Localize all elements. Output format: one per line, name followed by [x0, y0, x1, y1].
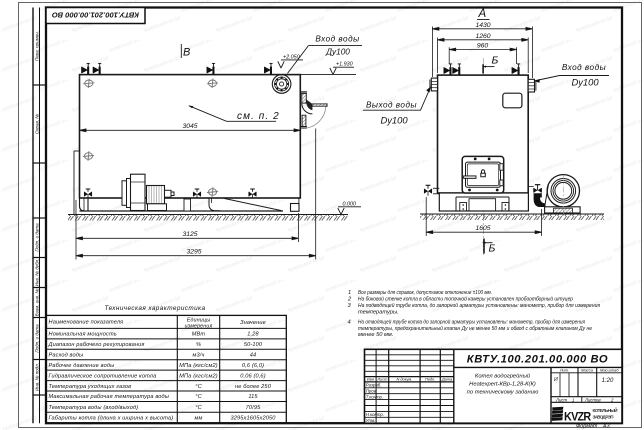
- svg-text:3045: 3045: [182, 123, 197, 130]
- svg-text:Подп. и дата: Подп. и дата: [34, 324, 39, 353]
- svg-text:Инв. № подл.: Инв. № подл.: [34, 363, 39, 391]
- svg-text:Техническая характеристика: Техническая характеристика: [105, 305, 206, 312]
- svg-text:Подп.: Подп.: [425, 377, 435, 382]
- svg-text:Ду100: Ду100: [325, 48, 350, 57]
- svg-text:Б: Б: [489, 243, 496, 255]
- svg-text:3295: 3295: [186, 248, 201, 255]
- svg-text:МПа (кгс/см2): МПа (кгс/см2): [179, 363, 217, 369]
- svg-text:Расход воды: Расход воды: [49, 353, 84, 359]
- svg-text:Справ. №: Справ. №: [34, 114, 39, 135]
- svg-text:Температура воды (вход/выход): Температура воды (вход/выход): [49, 405, 139, 411]
- svg-text:температуры.: температуры.: [358, 309, 399, 315]
- svg-text:не более 250: не более 250: [235, 384, 272, 390]
- svg-text:Номинальная мощность: Номинальная мощность: [49, 332, 117, 338]
- svg-text:960: 960: [477, 43, 489, 50]
- svg-text:А3: А3: [602, 424, 610, 430]
- svg-text:Вход воды: Вход воды: [562, 63, 606, 72]
- svg-text:Формат: Формат: [576, 424, 598, 430]
- svg-text:КВТУ.100.201.00.000 ВО: КВТУ.100.201.00.000 ВО: [52, 10, 139, 19]
- svg-text:°С: °С: [195, 384, 202, 390]
- svg-text:измерения: измерения: [185, 323, 213, 329]
- svg-text:Листов: Листов: [584, 397, 601, 402]
- svg-text:Вход воды: Вход воды: [315, 35, 359, 44]
- svg-text:1:20: 1:20: [602, 378, 614, 384]
- svg-text:КВТУ.100.201.00.000 ВО: КВТУ.100.201.00.000 ВО: [467, 354, 609, 366]
- svg-text:0,6 (6,0): 0,6 (6,0): [242, 363, 264, 369]
- svg-text:+1.930: +1.930: [336, 61, 353, 67]
- svg-text:КОТЕЛЬНЫЙ: КОТЕЛЬНЫЙ: [593, 406, 618, 413]
- svg-text:°С: °С: [195, 405, 202, 411]
- svg-text:Перв. примен.: Перв. примен.: [34, 31, 39, 61]
- svg-text:мм: мм: [195, 416, 203, 422]
- svg-text:На отводящей трубе котла до за: На отводящей трубе котла до запорной арм…: [358, 319, 585, 326]
- svg-text:+2.050: +2.050: [283, 54, 300, 60]
- svg-text:Утв.: Утв.: [366, 418, 376, 423]
- svg-text:Изм: Изм: [367, 377, 375, 382]
- svg-text:Рабочее давление воды: Рабочее давление воды: [49, 363, 115, 369]
- svg-text:Температура уходящих газов: Температура уходящих газов: [49, 384, 132, 390]
- svg-text:На боковой стенке котла в обла: На боковой стенке котла в области топочн…: [358, 295, 573, 302]
- svg-text:Б: Б: [492, 55, 499, 67]
- svg-text:44: 44: [250, 353, 257, 359]
- svg-text:Все размеры для справок, допус: Все размеры для справок, допустимое откл…: [358, 290, 492, 296]
- svg-text:1,28: 1,28: [247, 332, 259, 338]
- svg-text:В: В: [183, 47, 190, 59]
- svg-text:1: 1: [348, 290, 351, 296]
- svg-text:4: 4: [348, 320, 351, 326]
- svg-text:Диапазон рабочего регулировани: Диапазон рабочего регулирования: [48, 342, 145, 348]
- svg-text:Н.контр.: Н.контр.: [366, 412, 384, 417]
- svg-text:А: А: [478, 8, 487, 20]
- svg-text:KVZR: KVZR: [564, 410, 591, 424]
- svg-text:Подп. и дата: Подп. и дата: [34, 223, 39, 252]
- svg-text:50-100: 50-100: [244, 342, 263, 348]
- svg-text:МВт: МВт: [192, 332, 206, 338]
- svg-text:МПа (кгс/см2): МПа (кгс/см2): [179, 373, 217, 379]
- svg-text:Наименование показателя: Наименование показателя: [49, 320, 124, 326]
- svg-text:Максимальная рабочая температу: Максимальная рабочая температура воды: [49, 394, 170, 400]
- svg-text:3125: 3125: [182, 231, 197, 238]
- svg-text:Пров.: Пров.: [366, 389, 377, 394]
- svg-text:3295х1605х2050: 3295х1605х2050: [230, 416, 276, 422]
- svg-text:Инв. № дубл.: Инв. № дубл.: [34, 259, 39, 287]
- svg-text:Dy100: Dy100: [380, 115, 408, 126]
- svg-text:Масштаб: Масштаб: [600, 368, 619, 373]
- svg-text:м3/ч: м3/ч: [193, 353, 205, 359]
- svg-text:Котел водогрейный: Котел водогрейный: [475, 373, 531, 380]
- svg-text:1605: 1605: [475, 225, 490, 232]
- svg-text:70/95: 70/95: [246, 405, 261, 411]
- svg-text:Лист: Лист: [376, 377, 388, 382]
- svg-text:по техническому заданию: по техническому заданию: [467, 390, 539, 396]
- svg-text:менее 50 мм.: менее 50 мм.: [358, 332, 393, 338]
- svg-text:см. п. 2: см. п. 2: [237, 111, 280, 122]
- svg-text:1260: 1260: [475, 33, 490, 40]
- svg-text:Разраб.: Разраб.: [366, 383, 382, 388]
- svg-text:И: И: [554, 377, 558, 383]
- svg-text:115: 115: [248, 394, 258, 400]
- svg-text:Взам. инв. №: Взам. инв. №: [34, 288, 39, 316]
- svg-text:%: %: [196, 342, 201, 348]
- svg-text:1430: 1430: [475, 22, 490, 29]
- svg-text:N докум.: N докум.: [397, 377, 413, 382]
- svg-text:Лит.: Лит.: [559, 368, 569, 373]
- svg-text:ЗАВОД РЭП: ЗАВОД РЭП: [593, 414, 614, 419]
- svg-text:Дата: Дата: [441, 377, 453, 382]
- svg-text:Габариты котла (длина х ширина: Габариты котла (длина х ширина х высота): [49, 416, 174, 422]
- svg-text:Масса: Масса: [581, 368, 594, 373]
- svg-text:температуры, предохранительный: температуры, предохранительный клапан Ду…: [358, 325, 592, 332]
- svg-text:Heatexpert-КВр-1,28-К(К): Heatexpert-КВр-1,28-К(К): [469, 382, 536, 388]
- svg-text:Dy100: Dy100: [571, 76, 599, 87]
- svg-text:0,06 (0,6): 0,06 (0,6): [240, 373, 265, 379]
- svg-text:°С: °С: [195, 394, 202, 400]
- svg-text:Лист: Лист: [555, 397, 567, 402]
- svg-text:Выход воды: Выход воды: [366, 101, 417, 110]
- svg-text:Значение: Значение: [240, 320, 266, 326]
- svg-text:Т.контр.: Т.контр.: [366, 394, 383, 399]
- svg-text:Гидравлическое сопротивление к: Гидравлическое сопротивление котла: [49, 373, 157, 379]
- svg-text:На подводящей трубе котла, д: На подводящей трубе котла, до запорной а…: [358, 302, 600, 309]
